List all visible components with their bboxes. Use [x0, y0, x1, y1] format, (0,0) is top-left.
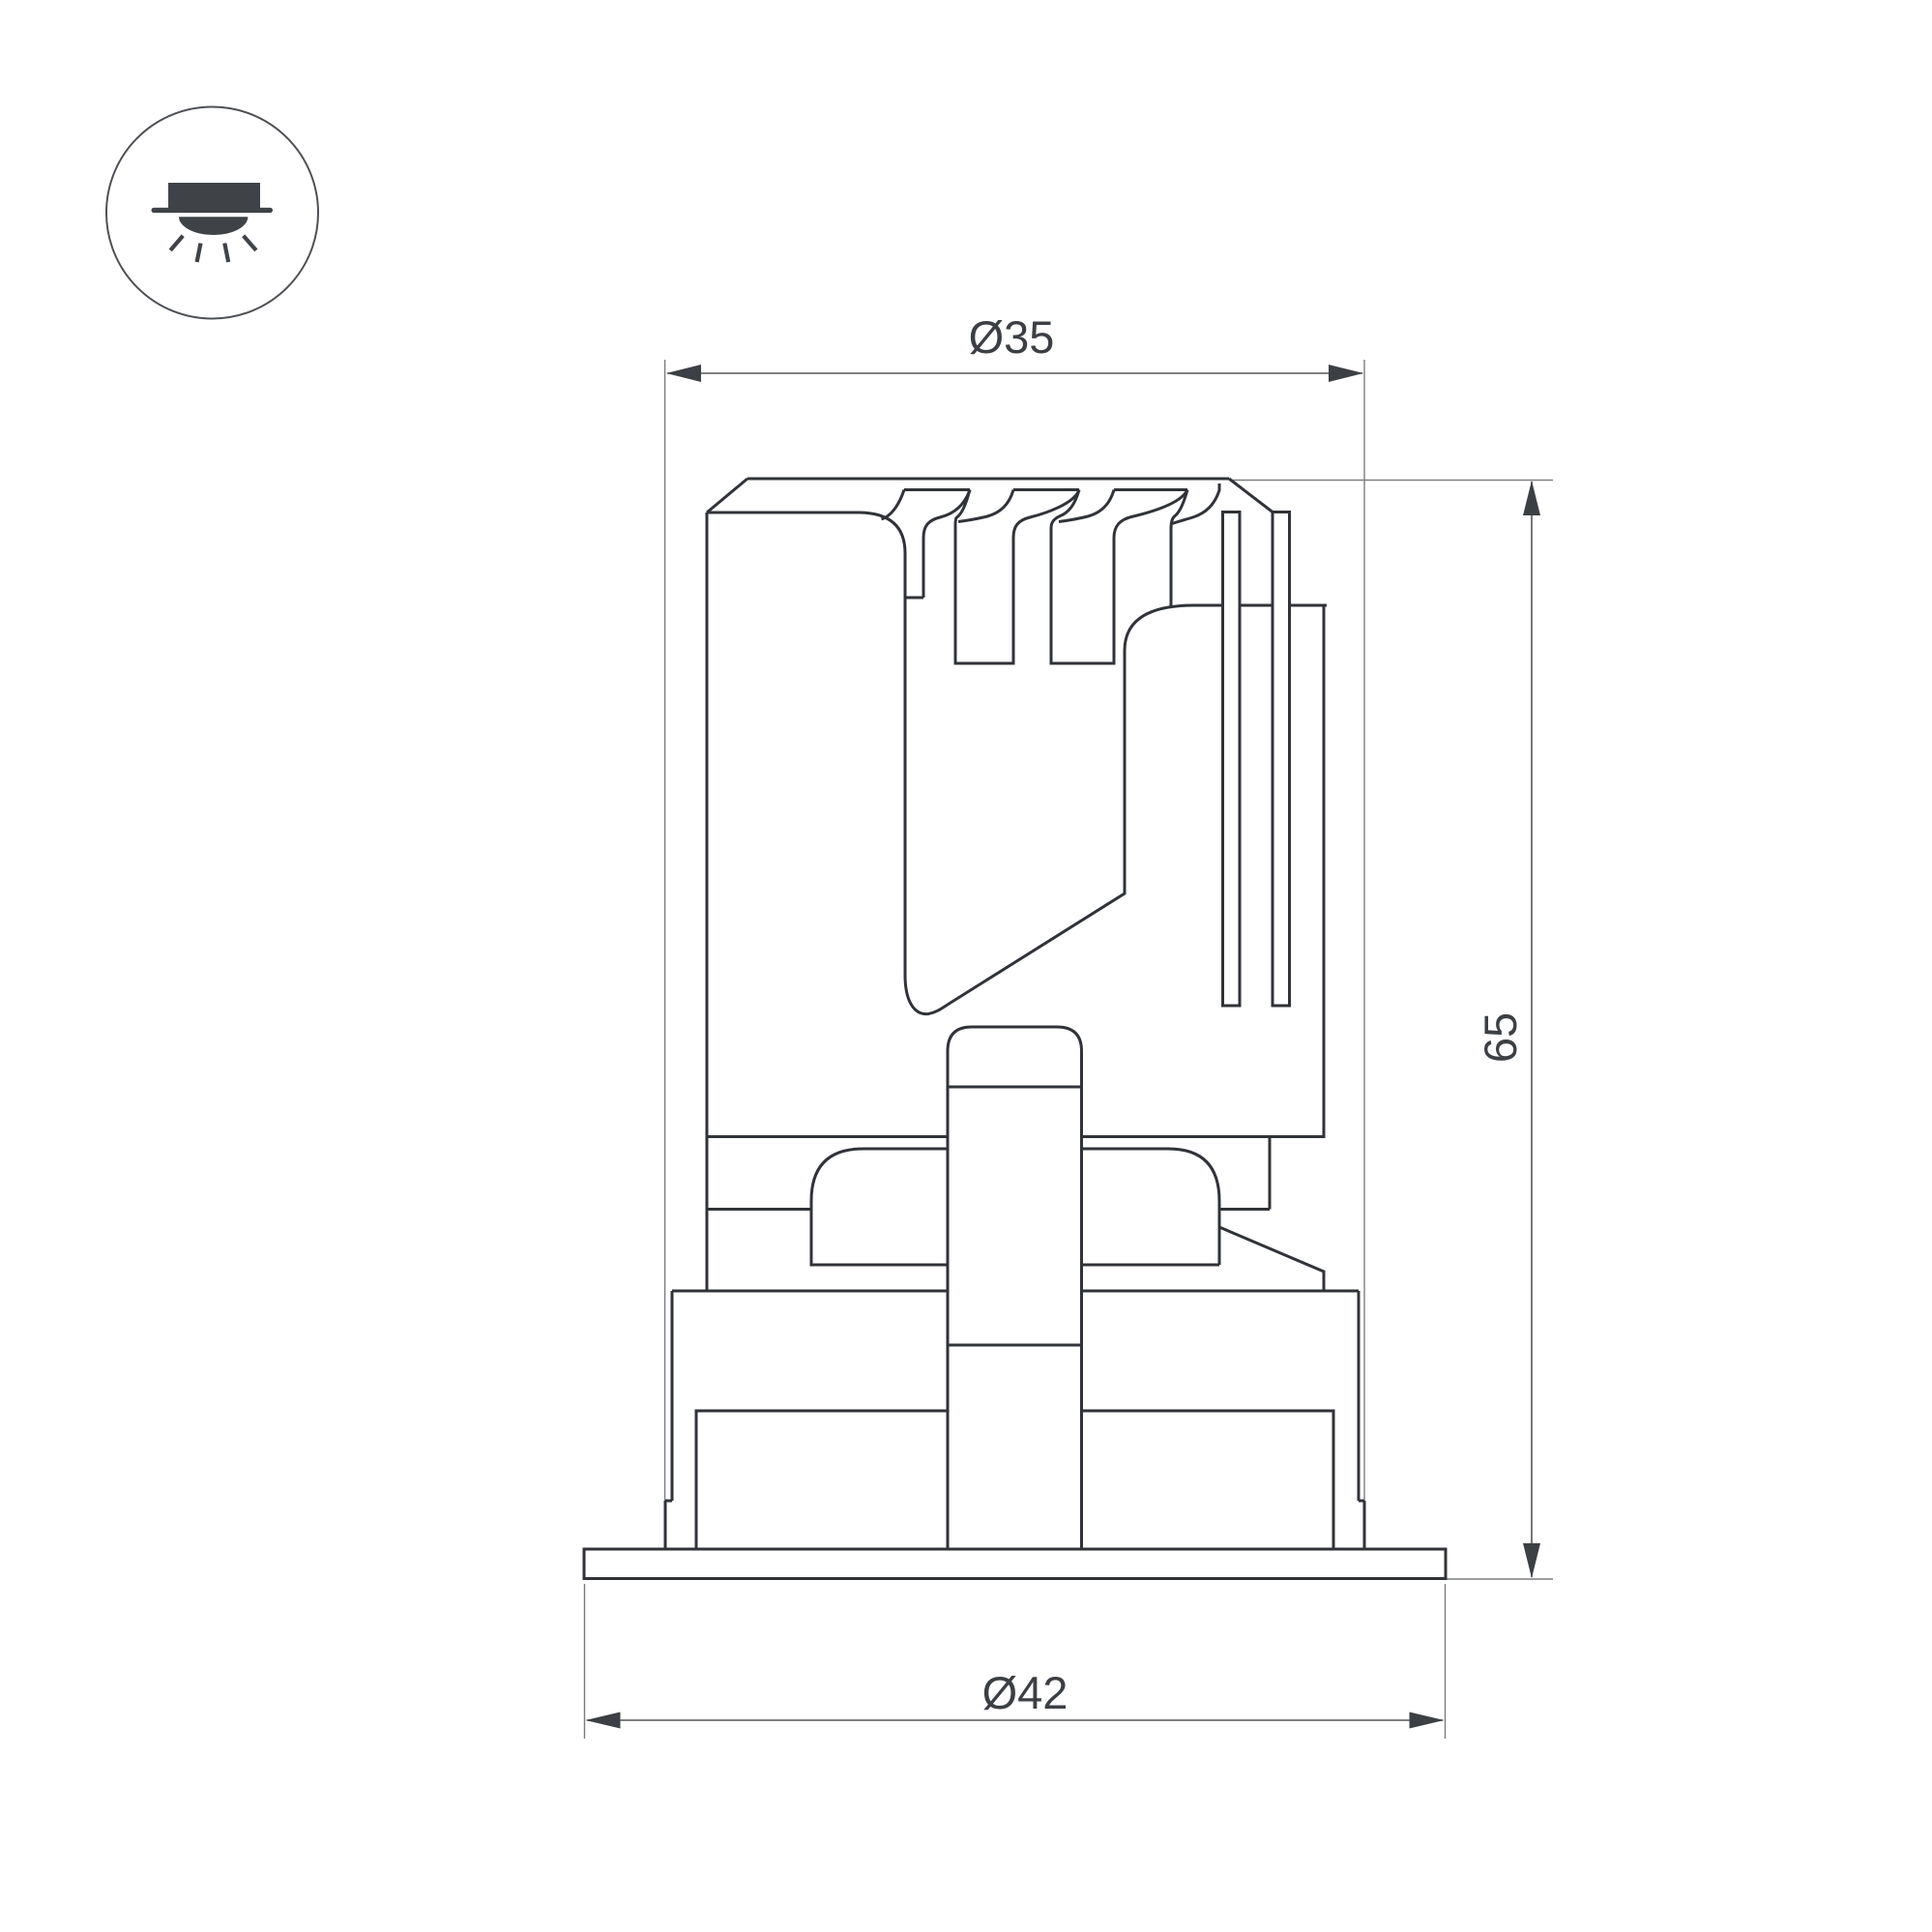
svg-text:65: 65	[1475, 1012, 1526, 1063]
svg-text:Ø42: Ø42	[982, 1667, 1068, 1718]
svg-text:Ø35: Ø35	[969, 311, 1055, 363]
